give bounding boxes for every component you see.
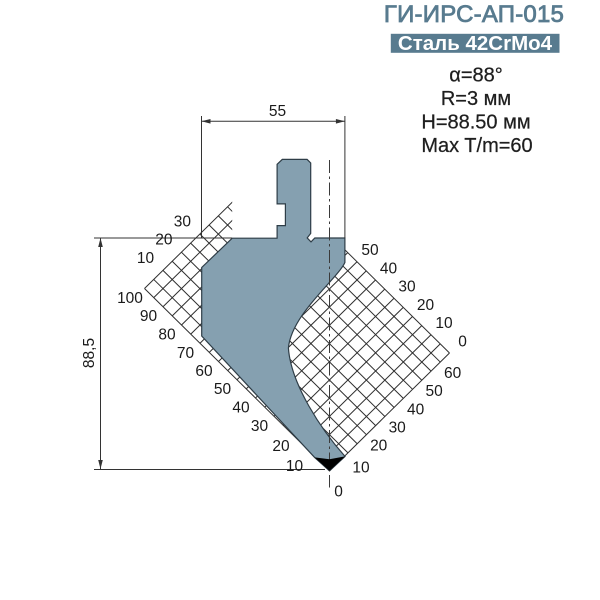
svg-text:α=88°: α=88° xyxy=(449,65,503,87)
svg-text:90: 90 xyxy=(140,308,158,325)
svg-text:0: 0 xyxy=(458,333,467,350)
svg-text:40: 40 xyxy=(380,260,398,277)
svg-text:50: 50 xyxy=(214,381,232,398)
svg-text:55: 55 xyxy=(269,103,286,120)
svg-text:10: 10 xyxy=(435,315,453,332)
svg-text:20: 20 xyxy=(155,232,173,249)
svg-text:H=88.50 мм: H=88.50 мм xyxy=(421,112,530,134)
svg-text:50: 50 xyxy=(425,383,443,400)
svg-text:Max T/m=60: Max T/m=60 xyxy=(421,135,532,157)
svg-text:10: 10 xyxy=(137,250,155,267)
svg-text:0: 0 xyxy=(334,484,343,501)
svg-text:30: 30 xyxy=(389,420,407,437)
svg-text:20: 20 xyxy=(370,438,388,455)
svg-text:Сталь 42CrMo4: Сталь 42CrMo4 xyxy=(398,32,553,55)
svg-text:10: 10 xyxy=(286,458,304,475)
svg-text:ГИ-ИРС-АП-015: ГИ-ИРС-АП-015 xyxy=(384,1,564,28)
svg-text:70: 70 xyxy=(177,345,195,362)
svg-text:88,5: 88,5 xyxy=(81,338,98,368)
svg-text:60: 60 xyxy=(195,363,213,380)
svg-text:50: 50 xyxy=(361,242,379,259)
svg-text:80: 80 xyxy=(158,327,176,344)
svg-text:40: 40 xyxy=(232,400,250,417)
svg-text:30: 30 xyxy=(174,214,192,231)
svg-text:30: 30 xyxy=(251,418,269,435)
svg-text:30: 30 xyxy=(398,279,416,296)
svg-text:100: 100 xyxy=(117,290,143,307)
svg-text:20: 20 xyxy=(272,438,290,455)
svg-text:40: 40 xyxy=(407,401,425,418)
svg-text:20: 20 xyxy=(417,297,435,314)
svg-text:R=3 мм: R=3 мм xyxy=(441,88,511,110)
svg-text:10: 10 xyxy=(352,459,370,476)
svg-text:60: 60 xyxy=(444,365,462,382)
